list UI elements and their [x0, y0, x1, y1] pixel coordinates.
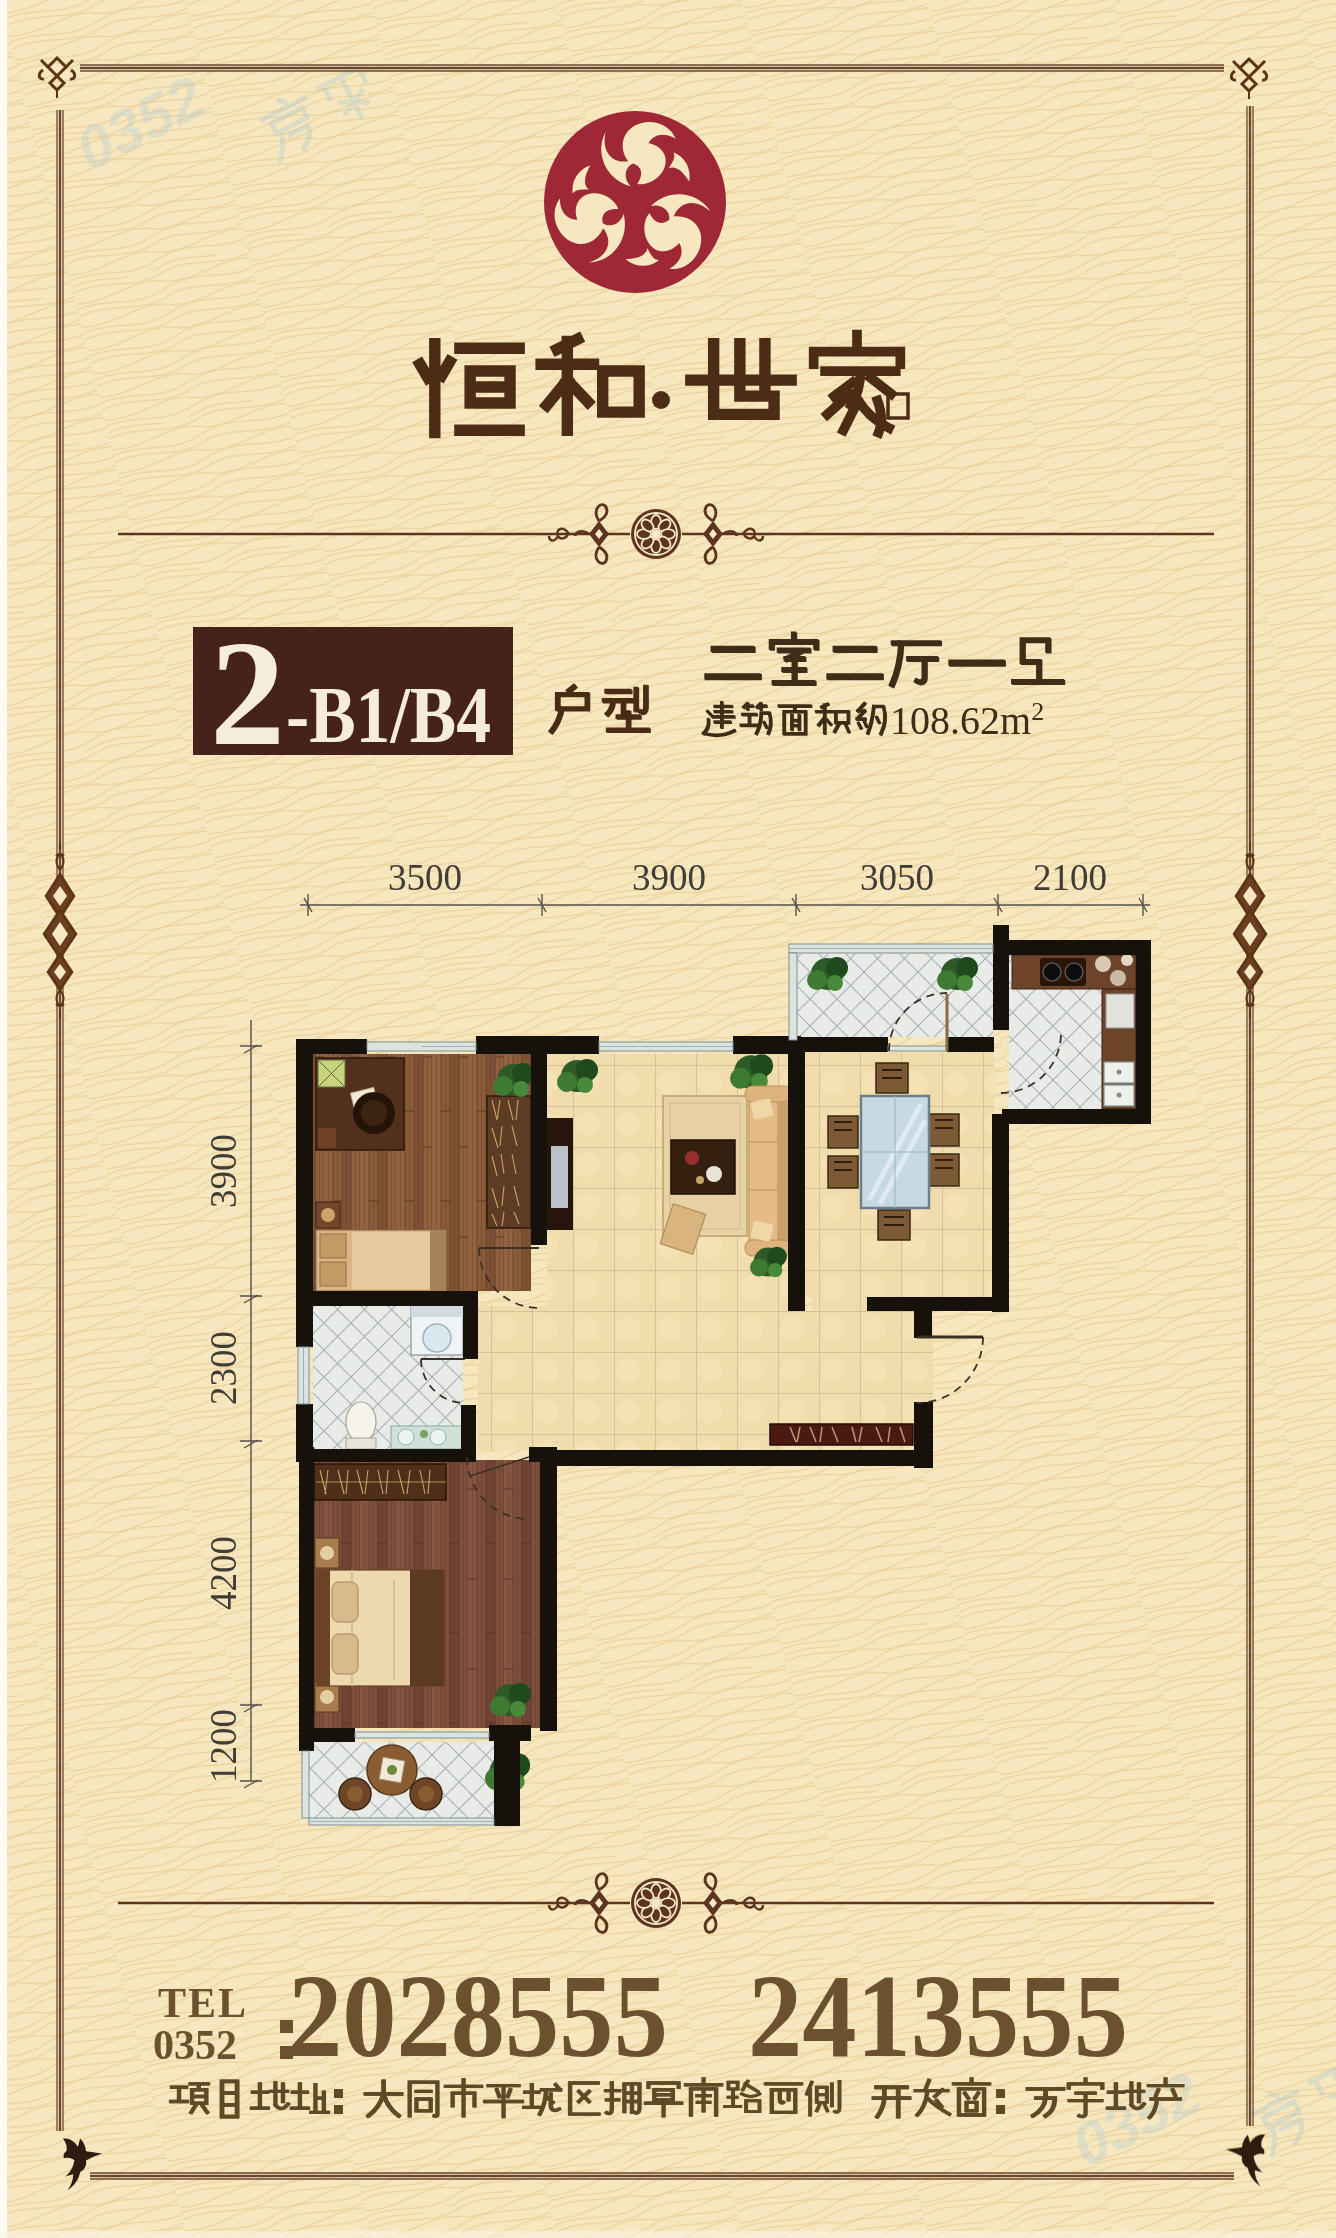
svg-text:3900: 3900 [203, 1134, 244, 1208]
svg-text:-B1/B4: -B1/B4 [286, 671, 491, 760]
svg-text:2300: 2300 [203, 1331, 244, 1405]
svg-text:2028555: 2028555 [288, 1951, 668, 2082]
svg-text:108.62m2: 108.62m2 [890, 697, 1044, 743]
svg-text:1200: 1200 [203, 1709, 244, 1783]
svg-text:4200: 4200 [203, 1536, 244, 1610]
svg-text:2100: 2100 [1033, 857, 1107, 898]
svg-text:TEL: TEL [158, 1980, 248, 2026]
svg-text:3050: 3050 [860, 857, 934, 898]
svg-text:0352: 0352 [153, 2022, 237, 2068]
svg-text:2413555: 2413555 [748, 1951, 1128, 2082]
svg-text:2: 2 [210, 610, 285, 776]
svg-text:3900: 3900 [632, 857, 706, 898]
svg-text:3500: 3500 [388, 857, 462, 898]
